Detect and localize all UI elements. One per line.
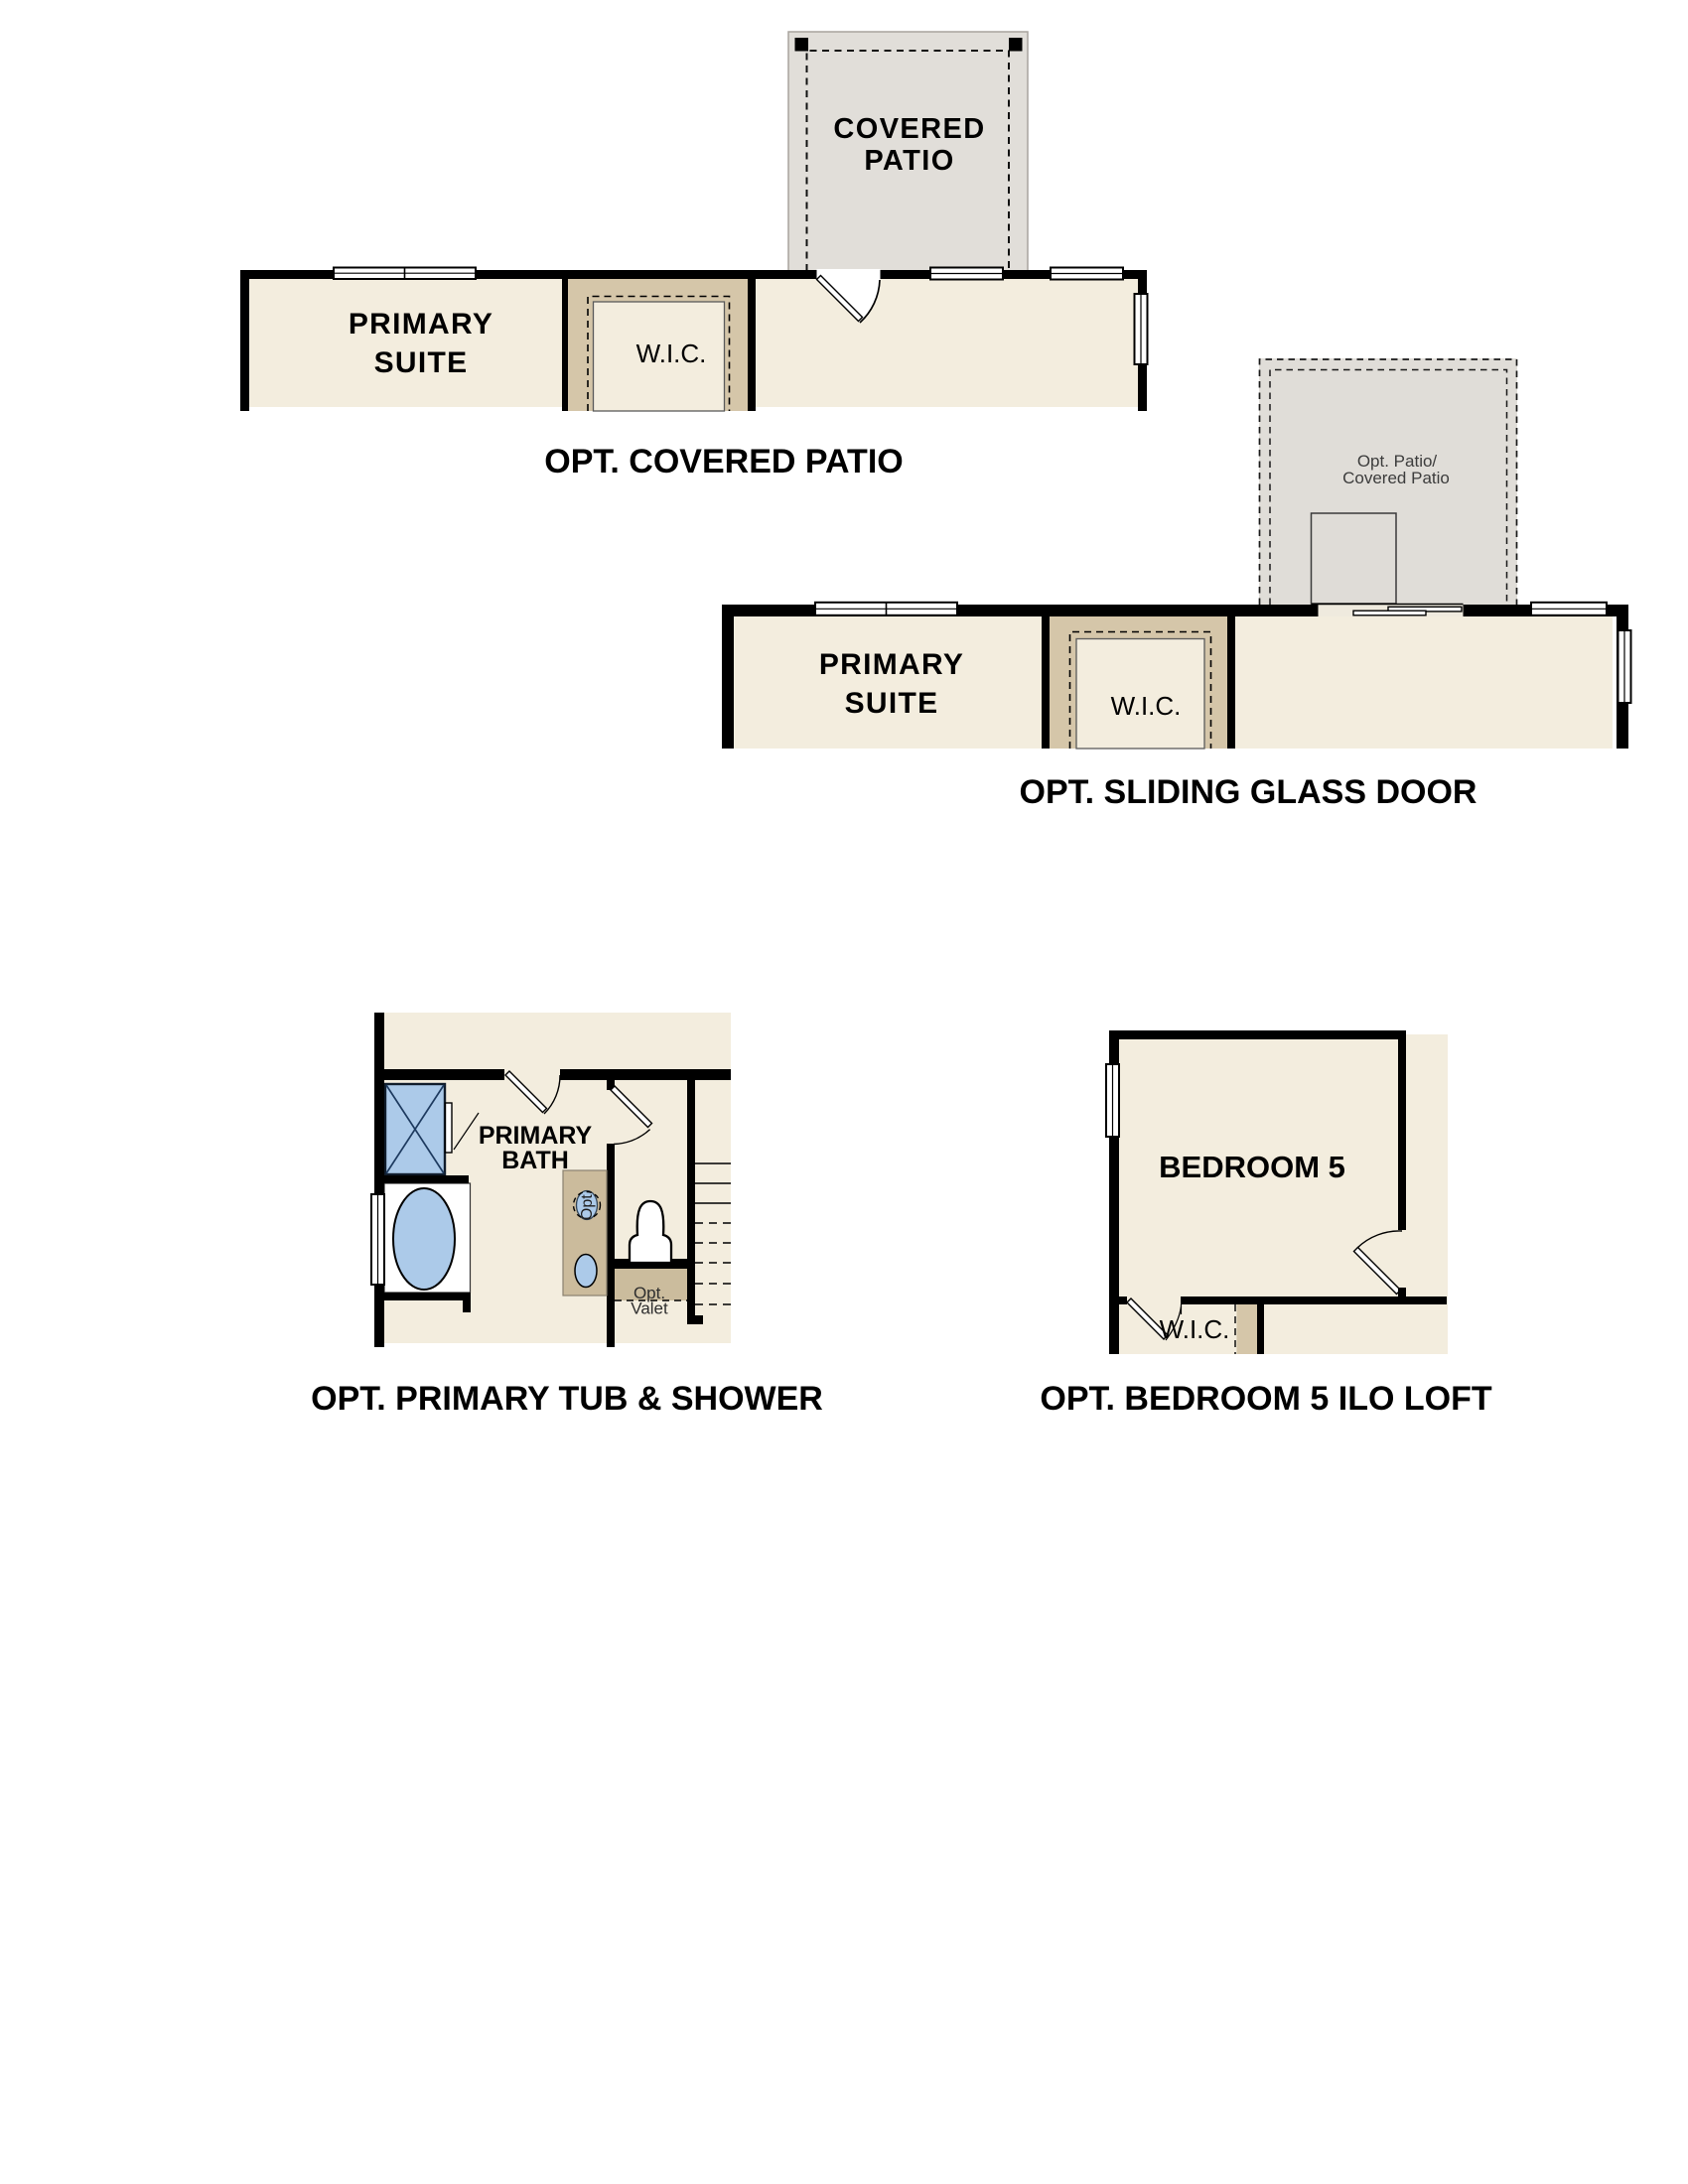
svg-text:Valet: Valet [631, 1299, 668, 1318]
svg-text:PATIO: PATIO [864, 145, 954, 177]
svg-text:W.I.C.: W.I.C. [1160, 1314, 1230, 1344]
svg-text:W.I.C.: W.I.C. [636, 339, 707, 368]
svg-text:SUITE: SUITE [374, 346, 469, 379]
svg-text:PRIMARY: PRIMARY [349, 308, 493, 341]
svg-text:OPT. PRIMARY TUB & SHOWER: OPT. PRIMARY TUB & SHOWER [311, 1380, 823, 1418]
svg-text:Covered Patio: Covered Patio [1342, 469, 1450, 487]
svg-text:PRIMARY: PRIMARY [819, 648, 964, 681]
svg-text:BATH: BATH [501, 1147, 569, 1174]
svg-text:OPT. SLIDING GLASS DOOR: OPT. SLIDING GLASS DOOR [1020, 773, 1477, 811]
svg-text:OPT. BEDROOM 5 ILO LOFT: OPT. BEDROOM 5 ILO LOFT [1040, 1380, 1491, 1418]
svg-text:BEDROOM 5: BEDROOM 5 [1159, 1150, 1345, 1184]
svg-text:Opt.: Opt. [579, 1190, 596, 1220]
svg-text:COVERED: COVERED [833, 113, 985, 145]
svg-text:W.I.C.: W.I.C. [1111, 691, 1182, 721]
svg-text:OPT. COVERED PATIO: OPT. COVERED PATIO [544, 443, 903, 480]
svg-text:PRIMARY: PRIMARY [479, 1122, 593, 1150]
svg-text:SUITE: SUITE [845, 687, 939, 720]
